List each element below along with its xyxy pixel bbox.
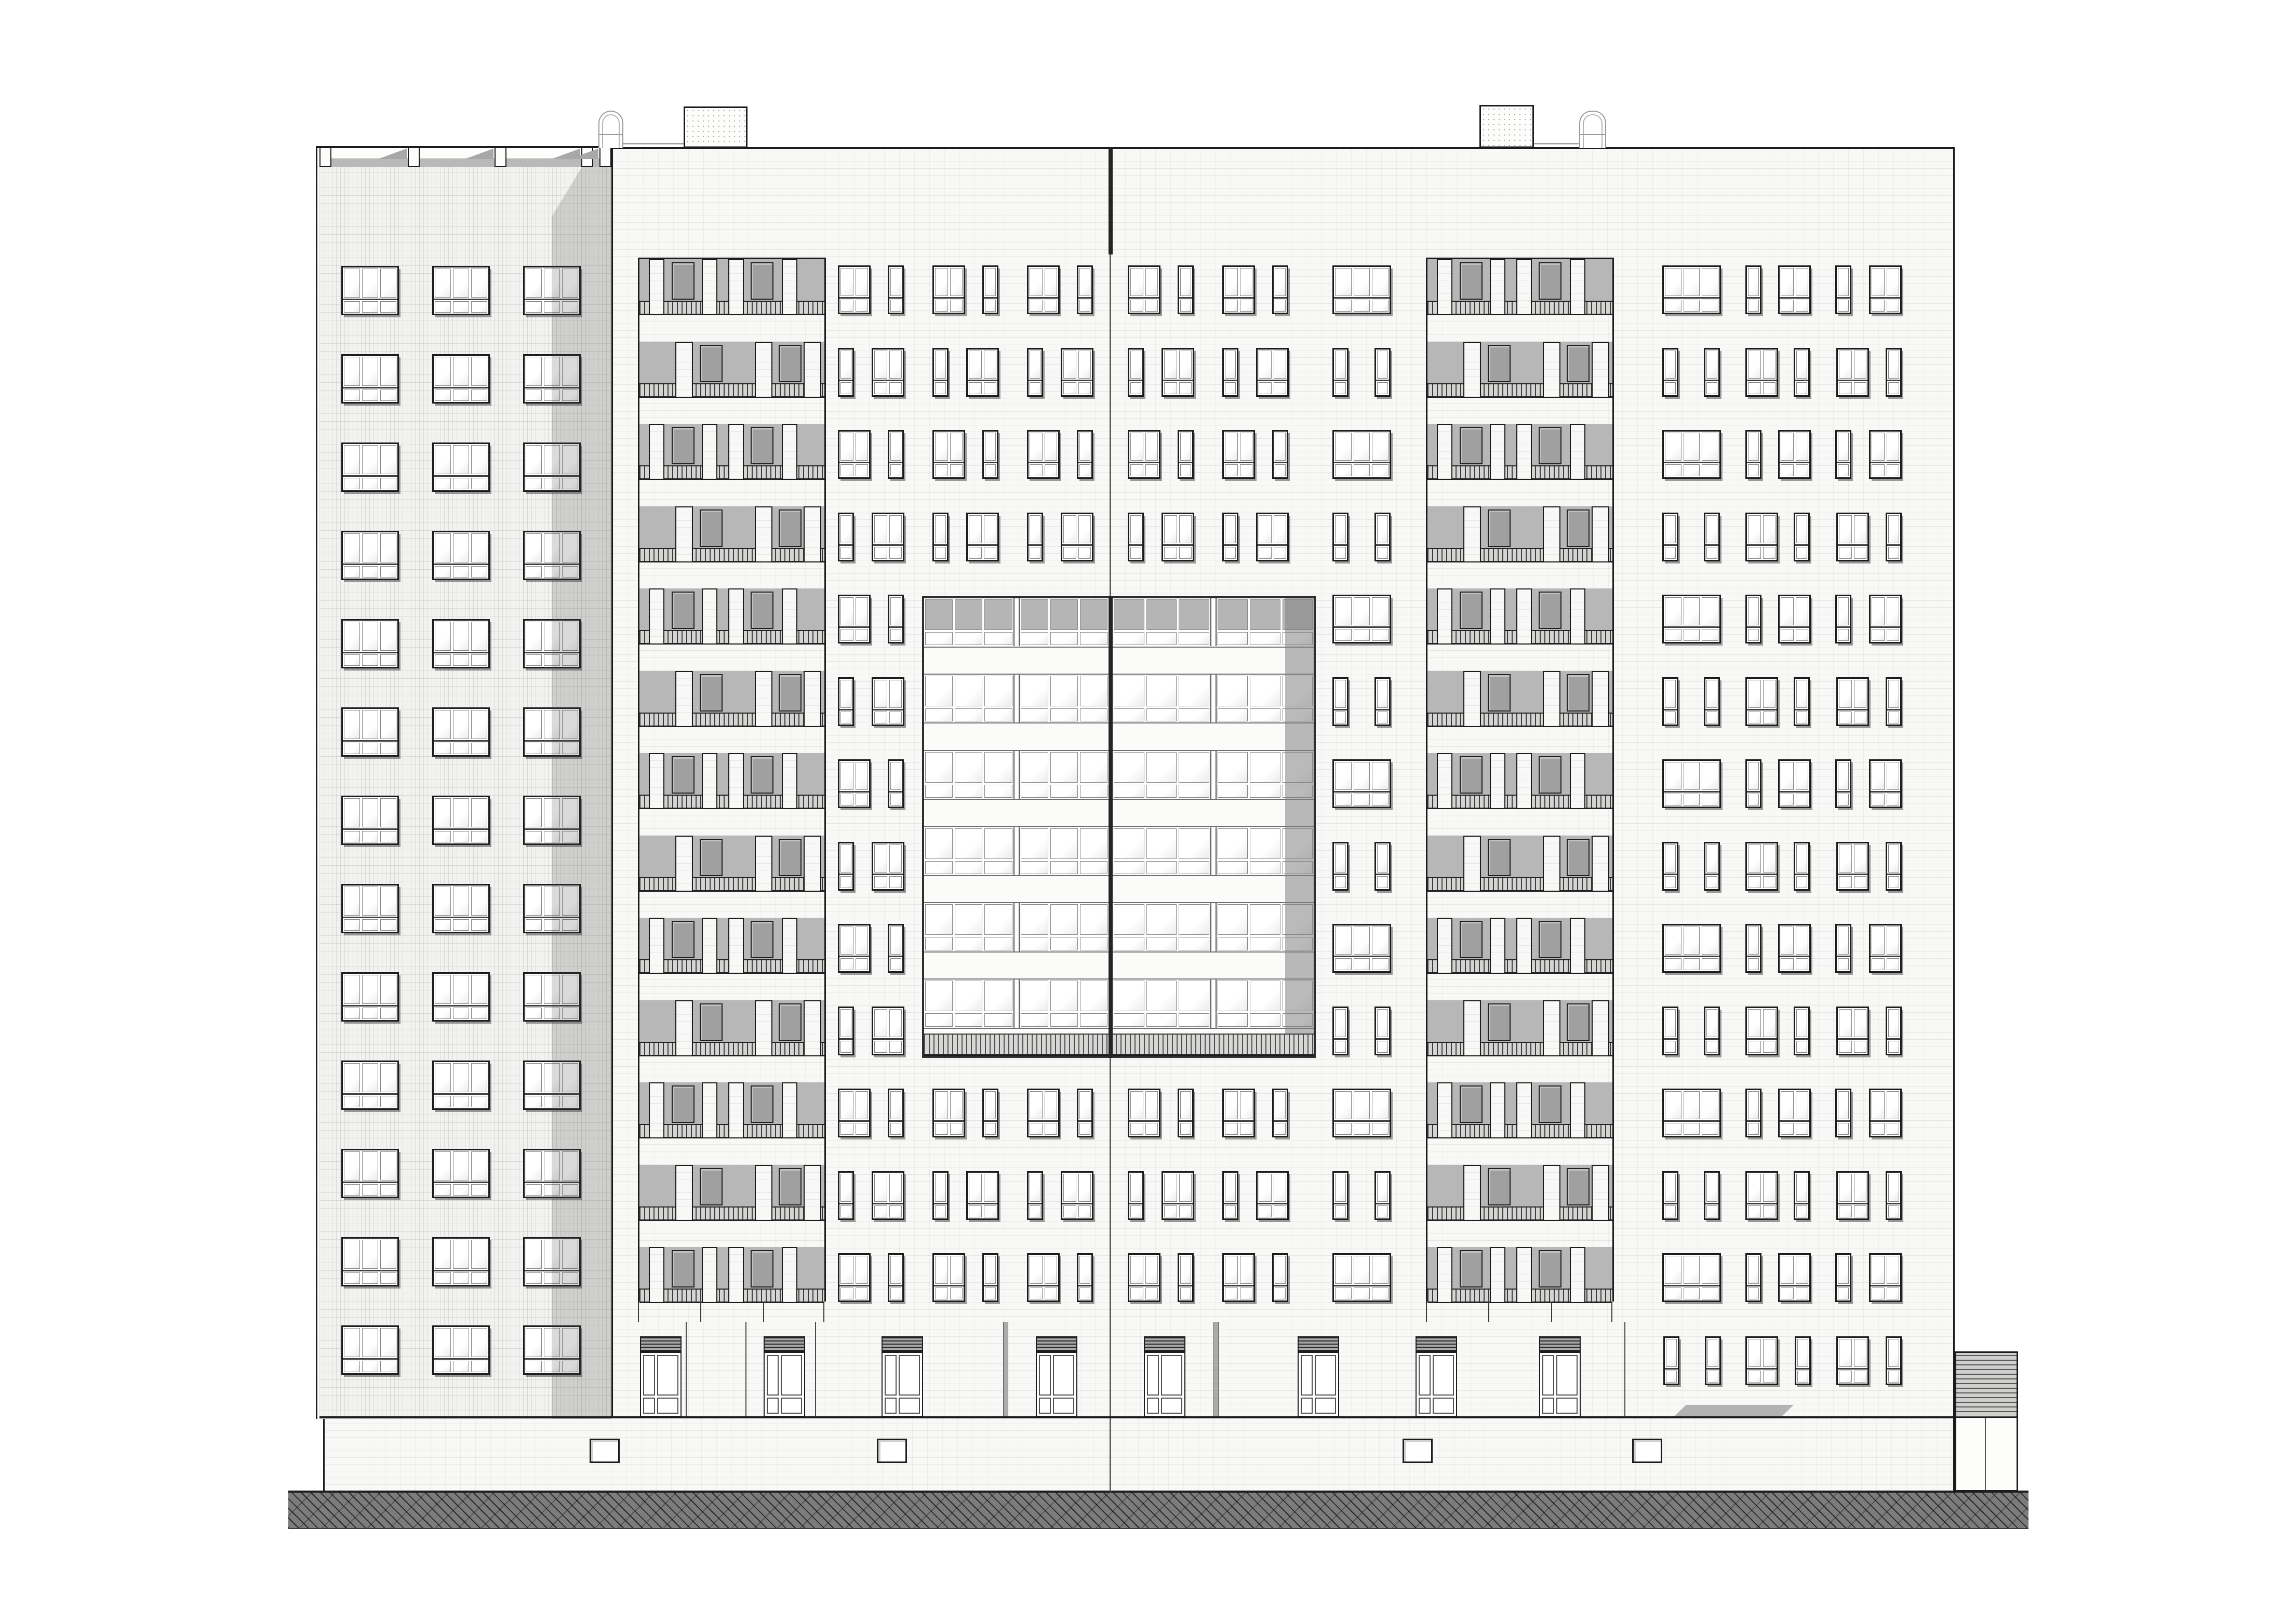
window-pane <box>1164 515 1177 543</box>
window-pane <box>1887 1256 1900 1284</box>
window-upper-sash <box>1747 1255 1760 1286</box>
window-pane <box>1796 1041 1807 1053</box>
window-pane <box>935 268 948 296</box>
entrance-door <box>882 1352 923 1417</box>
window-pane <box>984 515 997 543</box>
window-pane <box>1665 762 1681 790</box>
balcony-pier <box>1463 342 1481 398</box>
expansion-joint <box>1109 596 1113 1058</box>
atrium-center-mullion <box>1013 751 1020 784</box>
window-pane <box>380 269 396 298</box>
window-pane <box>1145 433 1158 461</box>
window-pane <box>925 785 953 798</box>
atrium-center-mullion <box>1013 980 1020 1012</box>
window-pane <box>874 1205 887 1217</box>
facade-window <box>1745 265 1761 314</box>
balcony-pier <box>782 918 797 974</box>
window-pane <box>1684 762 1700 790</box>
balcony-railing <box>639 1206 824 1221</box>
window-pane <box>471 1240 487 1269</box>
balcony-pier <box>1516 1082 1532 1138</box>
tower-parapet-shadow-band <box>321 158 610 167</box>
balcony-spandrel <box>1427 315 1612 342</box>
window-pane <box>950 1091 963 1119</box>
balcony-pier <box>1437 1082 1452 1138</box>
base-window <box>1403 1439 1433 1463</box>
balcony-bay <box>1427 424 1612 506</box>
balcony-pier <box>1592 342 1609 398</box>
balcony-pier <box>1437 753 1452 809</box>
window-upper-sash <box>1747 432 1760 463</box>
tower-window <box>432 619 490 668</box>
facade-window <box>1886 513 1902 561</box>
facade-window <box>1745 1336 1778 1385</box>
window-pane <box>453 269 469 298</box>
window-pane <box>1030 433 1043 461</box>
window-pane <box>889 1041 902 1053</box>
facade-window <box>1662 348 1678 397</box>
balcony-pier <box>649 424 664 480</box>
window-pane <box>1114 828 1144 859</box>
atrium-railing <box>924 1034 1314 1056</box>
window-pane <box>1706 1174 1717 1202</box>
facade-window <box>872 1171 904 1220</box>
window-pane <box>1259 382 1272 394</box>
door-louver <box>1416 1336 1457 1352</box>
window-pane <box>562 1008 578 1019</box>
window-pane <box>1665 382 1676 394</box>
facade-window <box>888 759 904 808</box>
window-pane <box>1078 547 1091 559</box>
window-pane <box>1114 676 1144 706</box>
window-lower-sash <box>1664 463 1719 477</box>
window-upper-sash <box>1664 596 1719 628</box>
window-pane <box>935 382 946 394</box>
window-pane <box>1179 382 1192 394</box>
window-pane <box>344 566 360 578</box>
facade-window <box>1662 1171 1678 1220</box>
balcony-spandrel <box>1427 974 1612 1000</box>
facade-window <box>1745 348 1778 397</box>
atrium-center-mullion <box>1013 827 1020 860</box>
window-pane <box>1665 1091 1681 1119</box>
tower-window <box>341 354 399 404</box>
window-pane <box>1335 629 1352 641</box>
window-pane <box>1748 433 1759 461</box>
tower-window <box>523 1237 581 1286</box>
window-upper-sash <box>1747 1008 1777 1040</box>
window-upper-sash <box>1334 1173 1347 1204</box>
facade-window <box>1162 348 1194 397</box>
window-pane <box>544 301 560 313</box>
window-lower-sash <box>1078 1122 1091 1136</box>
window-pane <box>1130 547 1141 559</box>
window-lower-sash <box>1887 1040 1900 1054</box>
window-lower-sash <box>873 381 903 395</box>
window-pane <box>955 708 982 721</box>
window-pane <box>562 710 578 739</box>
window-pane <box>1335 794 1352 806</box>
window-lower-sash <box>1747 1286 1760 1300</box>
window-pane <box>380 622 396 651</box>
atrium-center-mullion <box>1210 631 1217 646</box>
window-pane <box>1021 981 1048 1011</box>
facade-window <box>1222 513 1238 561</box>
balcony-door <box>1460 592 1483 629</box>
window-pane <box>955 1013 982 1026</box>
balcony-door <box>751 756 773 794</box>
window-pane <box>562 390 578 401</box>
facade-window <box>1027 265 1060 314</box>
door-leaf <box>781 1355 802 1414</box>
balcony-pier <box>649 259 664 315</box>
window-upper-sash <box>343 1062 397 1095</box>
window-pane <box>925 676 953 706</box>
window-upper-sash <box>1258 1173 1287 1204</box>
window-upper-sash <box>934 1173 947 1204</box>
window-pane <box>1838 433 1849 461</box>
window-pane <box>935 1091 948 1119</box>
facade-window <box>1256 348 1289 397</box>
window-upper-sash <box>525 1062 579 1095</box>
window-lower-sash <box>1747 1040 1777 1054</box>
window-pane <box>544 919 560 931</box>
window-pane <box>1763 515 1776 543</box>
window-pane <box>1887 762 1900 790</box>
window-upper-sash <box>1334 1090 1390 1122</box>
window-pane <box>1145 1123 1158 1135</box>
atrium-spandrel <box>924 799 1109 827</box>
window-pane <box>1021 676 1048 706</box>
window-lower-sash <box>1837 299 1850 313</box>
window-pane <box>984 632 1012 645</box>
facade-window <box>1027 1089 1060 1137</box>
window-lower-sash <box>1705 1040 1718 1054</box>
facade-window <box>872 1007 904 1055</box>
window-pane <box>1021 828 1048 859</box>
window-pane <box>1114 861 1144 874</box>
window-pane <box>1887 629 1900 641</box>
window-lower-sash <box>1078 1286 1091 1300</box>
window-pane <box>544 1240 560 1269</box>
window-lower-sash <box>1871 628 1900 642</box>
window-pane <box>471 478 487 489</box>
window-pane <box>1706 547 1717 559</box>
window-upper-sash <box>839 596 869 628</box>
window-lower-sash <box>1179 299 1192 313</box>
window-pane <box>1763 382 1776 394</box>
facade-window <box>1745 1089 1761 1137</box>
window-pane <box>1748 300 1759 312</box>
window-pane <box>1179 752 1209 783</box>
window-pane <box>526 654 542 666</box>
balcony-door <box>1488 1168 1511 1205</box>
window-pane <box>955 828 982 859</box>
window-pane <box>984 1205 997 1217</box>
window-pane <box>1377 351 1388 379</box>
atrium-glass-row <box>924 707 1109 722</box>
window-upper-sash <box>434 1062 488 1095</box>
window-lower-sash <box>1780 1122 1809 1136</box>
window-pane <box>1665 464 1681 476</box>
window-upper-sash <box>434 886 488 918</box>
window-lower-sash <box>1078 299 1091 313</box>
window-lower-sash <box>1163 381 1193 395</box>
window-pane <box>874 351 887 379</box>
window-pane <box>840 712 851 723</box>
window-pane <box>1838 794 1849 806</box>
window-lower-sash <box>1129 299 1159 313</box>
window-lower-sash <box>1129 1122 1159 1136</box>
facade-window <box>838 265 871 314</box>
window-pane <box>344 1008 360 1019</box>
window-pane <box>984 828 1012 859</box>
window-lower-sash <box>839 463 869 477</box>
balcony-pier <box>1490 1247 1505 1303</box>
window-upper-sash <box>1376 1008 1389 1040</box>
window-pane <box>925 937 953 950</box>
window-pane <box>1130 1256 1143 1284</box>
window-pane <box>1283 752 1313 783</box>
window-lower-sash <box>525 918 579 932</box>
window-pane <box>1372 597 1389 625</box>
window-upper-sash <box>1664 761 1719 793</box>
window-pane <box>1240 1091 1253 1119</box>
window-pane <box>1707 1339 1718 1367</box>
window-pane <box>1665 1123 1681 1135</box>
window-pane <box>1045 433 1058 461</box>
facade-window <box>932 513 949 561</box>
balcony-pier <box>1516 259 1532 315</box>
window-pane <box>1179 351 1192 379</box>
door-leaf <box>1315 1355 1336 1414</box>
entrance-door <box>1416 1352 1457 1417</box>
window-upper-sash <box>889 925 902 957</box>
window-upper-sash <box>343 974 397 1007</box>
window-pane <box>856 629 869 641</box>
window-upper-sash <box>889 1090 902 1122</box>
window-pane <box>1797 1339 1808 1367</box>
window-lower-sash <box>434 1271 488 1285</box>
window-pane <box>1179 785 1209 798</box>
window-upper-sash <box>525 709 579 742</box>
window-lower-sash <box>1705 546 1718 560</box>
balcony-pier <box>1463 671 1481 727</box>
facade-window <box>982 430 998 479</box>
atrium-glass-row <box>1113 598 1314 631</box>
tower-window <box>432 1237 490 1286</box>
window-pane <box>1179 708 1209 721</box>
window-pane <box>969 515 982 543</box>
window-lower-sash <box>839 299 869 313</box>
window-pane <box>1748 1371 1761 1383</box>
window-pane <box>1377 547 1388 559</box>
window-pane <box>1335 547 1346 559</box>
window-pane <box>1781 300 1794 312</box>
window-pane <box>1335 382 1346 394</box>
window-lower-sash <box>1780 628 1809 642</box>
tower-window <box>341 1325 399 1375</box>
balcony-pier <box>1437 1247 1452 1303</box>
window-pane <box>344 301 360 313</box>
window-pane <box>1854 876 1867 888</box>
window-pane <box>889 680 902 708</box>
window-pane <box>1665 1174 1676 1202</box>
facade-window <box>1836 1171 1869 1220</box>
window-pane <box>950 1123 963 1135</box>
balcony-pier <box>1516 918 1532 974</box>
window-lower-sash <box>343 477 397 490</box>
window-pane <box>840 1205 851 1217</box>
window-pane <box>1218 752 1248 783</box>
window-pane <box>1164 547 1177 559</box>
window-pane <box>471 743 487 754</box>
window-pane <box>1684 1256 1700 1284</box>
window-pane <box>950 1287 963 1299</box>
balcony-pier <box>675 836 693 892</box>
facade-window <box>932 430 965 479</box>
window-pane <box>840 1091 853 1119</box>
window-upper-sash <box>839 761 869 793</box>
door-glass <box>885 1355 897 1396</box>
atrium-center-mullion <box>1013 860 1020 875</box>
window-pane <box>1887 927 1900 955</box>
balcony-pier <box>1543 671 1560 727</box>
window-pane <box>1354 433 1370 461</box>
window-pane <box>1114 708 1144 721</box>
balcony-door <box>1460 1250 1483 1287</box>
balcony-door <box>1488 839 1511 876</box>
window-pane <box>1796 680 1807 708</box>
facade-window <box>1332 1007 1349 1055</box>
window-pane <box>1872 433 1885 461</box>
facade-window <box>932 1171 949 1220</box>
window-lower-sash <box>1838 875 1867 889</box>
window-lower-sash <box>434 565 488 579</box>
window-upper-sash <box>839 1255 869 1286</box>
window-pane <box>344 1328 360 1357</box>
window-pane <box>1146 904 1177 935</box>
balcony-pier <box>755 1000 772 1056</box>
window-pane <box>955 904 982 935</box>
window-pane <box>1748 351 1761 379</box>
window-pane <box>1872 1256 1885 1284</box>
window-pane <box>889 876 902 888</box>
facade-window <box>982 265 998 314</box>
tower-window <box>523 266 581 315</box>
door-leaf <box>1161 1355 1182 1414</box>
window-lower-sash <box>1795 875 1808 889</box>
window-upper-sash <box>1837 925 1850 957</box>
window-lower-sash <box>1887 546 1900 560</box>
window-pane <box>925 828 953 859</box>
window-lower-sash <box>1334 1122 1390 1136</box>
window-lower-sash <box>934 381 947 395</box>
balcony-door <box>779 1168 802 1205</box>
window-pane <box>889 712 902 723</box>
door-panel <box>781 1398 802 1414</box>
balcony-door <box>700 509 723 547</box>
window-pane <box>1030 515 1040 543</box>
window-pane <box>1045 1123 1058 1135</box>
window-pane <box>435 798 451 827</box>
tower-window <box>341 442 399 492</box>
window-upper-sash <box>1838 514 1867 546</box>
facade-window <box>1836 513 1869 561</box>
window-pane <box>453 566 469 578</box>
window-lower-sash <box>1664 628 1719 642</box>
window-pane <box>1030 1123 1043 1135</box>
wall-joint-line <box>745 1322 746 1417</box>
window-pane <box>955 599 982 630</box>
window-pane <box>1164 1205 1177 1217</box>
window-pane <box>1225 300 1238 312</box>
facade-window <box>888 430 904 479</box>
window-pane <box>1354 464 1370 476</box>
window-pane <box>840 927 853 955</box>
window-pane <box>453 654 469 666</box>
window-pane <box>435 1328 451 1357</box>
window-lower-sash <box>1129 463 1159 477</box>
atrium-glass-row <box>1113 827 1314 860</box>
balcony-door <box>751 262 773 300</box>
window-upper-sash <box>1062 350 1092 381</box>
window-pane <box>526 710 542 739</box>
facade-window <box>1272 430 1288 479</box>
balcony-pier <box>649 1082 664 1138</box>
window-pane <box>856 927 869 955</box>
window-pane <box>1854 1041 1867 1053</box>
atrium-center-mullion <box>1210 827 1217 860</box>
window-pane <box>1796 300 1809 312</box>
window-pane <box>1684 464 1700 476</box>
window-pane <box>526 831 542 842</box>
window-pane <box>1854 680 1867 708</box>
window-pane <box>1283 599 1313 630</box>
window-pane <box>562 1063 578 1092</box>
balcony-pier <box>804 836 821 892</box>
window-pane <box>344 1151 360 1181</box>
window-pane <box>1021 632 1048 645</box>
facade-window <box>1794 348 1810 397</box>
window-pane <box>1275 1256 1286 1284</box>
door-louver <box>882 1336 923 1352</box>
window-lower-sash <box>1837 793 1850 807</box>
window-pane <box>435 919 451 931</box>
window-lower-sash <box>1224 1122 1253 1136</box>
window-pane <box>544 1328 560 1357</box>
window-pane <box>890 629 901 641</box>
window-lower-sash <box>1258 1204 1287 1218</box>
window-pane <box>1372 629 1389 641</box>
facade-window <box>1061 1171 1093 1220</box>
window-upper-sash <box>1780 267 1809 299</box>
window-lower-sash <box>1029 1204 1042 1218</box>
window-pane <box>380 831 396 842</box>
window-pane <box>1796 1091 1809 1119</box>
window-pane <box>526 1184 542 1196</box>
facade-window <box>982 1089 998 1137</box>
window-pane <box>1854 844 1867 873</box>
window-pane <box>1796 1123 1809 1135</box>
balcony-support-line <box>1488 1302 1489 1322</box>
window-pane <box>955 785 982 798</box>
window-lower-sash <box>1224 299 1253 313</box>
window-pane <box>1763 547 1776 559</box>
window-upper-sash <box>1747 761 1760 793</box>
balcony-pier <box>728 588 744 645</box>
window-pane <box>380 533 396 562</box>
